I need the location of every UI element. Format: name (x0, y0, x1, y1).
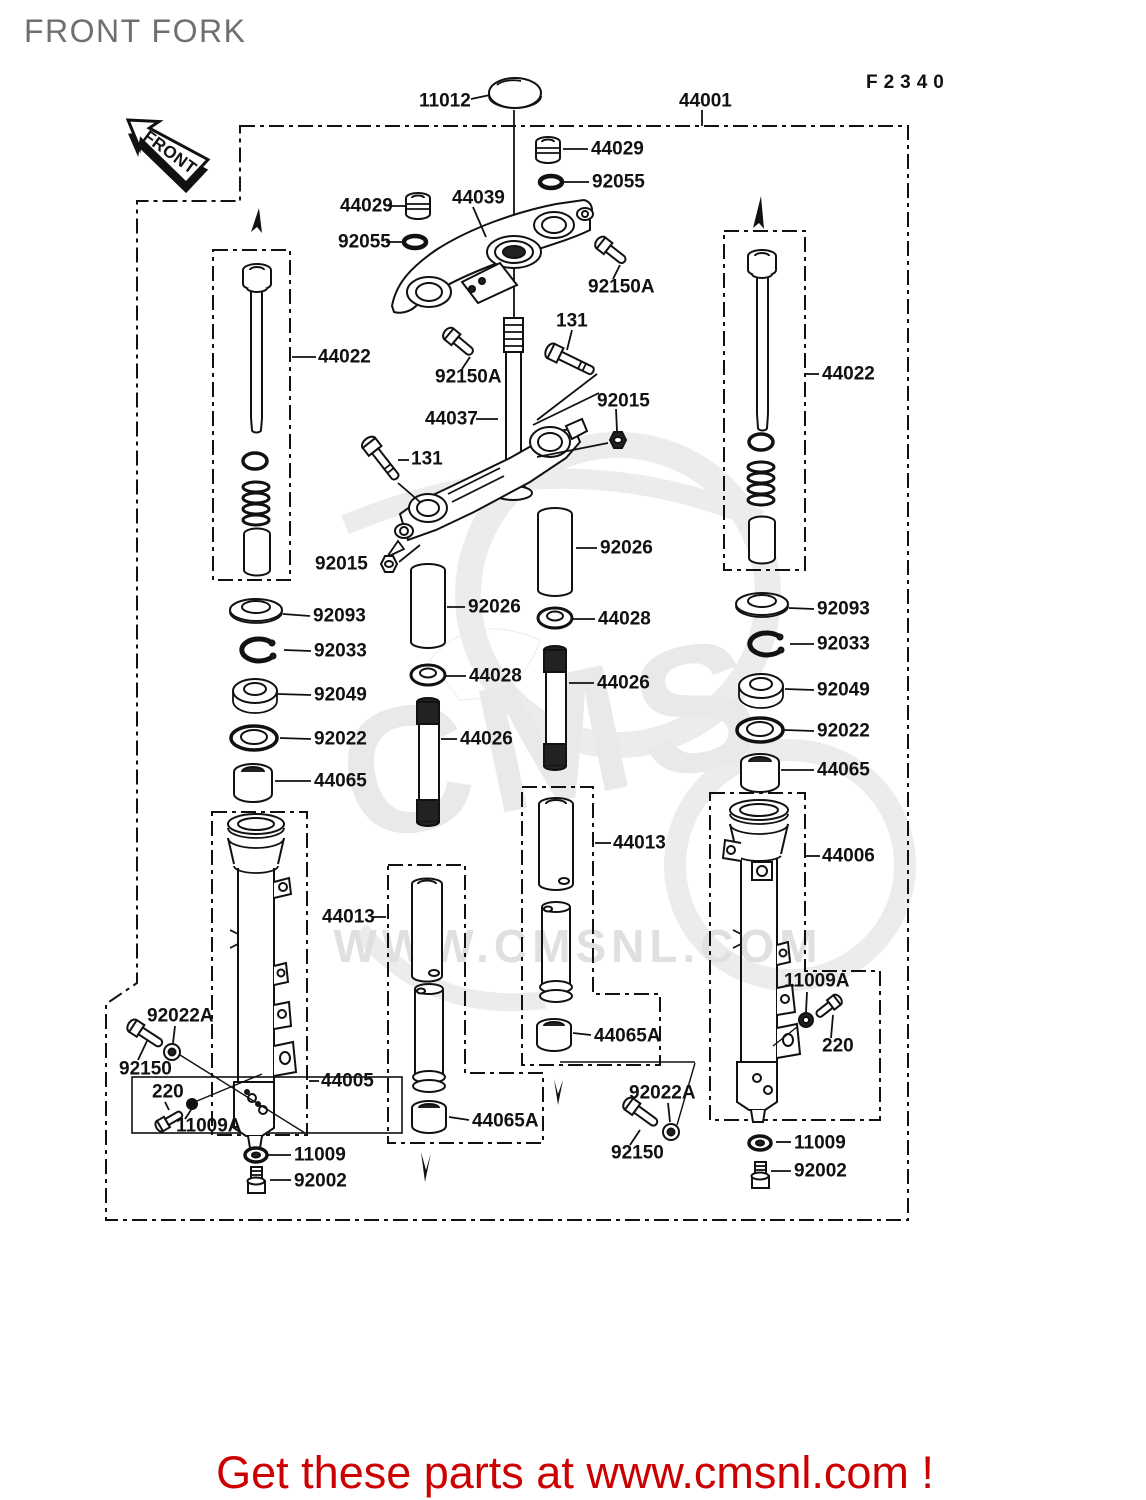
front-arrow: FRONT (113, 106, 214, 195)
nut-92015-right-drawing (610, 432, 626, 448)
part-label-11009A-left: 11009A (176, 1116, 242, 1137)
part-label-44029-left: 44029 (340, 196, 393, 217)
washer-44028-right-drawing (538, 608, 572, 628)
part-label-44065A-left: 44065A (472, 1111, 539, 1132)
page-title: FRONT FORK (24, 13, 246, 49)
part-label-44037: 44037 (425, 409, 478, 430)
screw-92002-left-drawing (248, 1167, 266, 1193)
part-label-44028-right: 44028 (598, 609, 651, 630)
bolt-220-right-drawing (814, 993, 844, 1020)
oring-92055-left-drawing (404, 236, 426, 248)
part-label-92150-left: 92150 (119, 1059, 172, 1080)
part-label-11012: 11012 (419, 91, 471, 112)
part-label-92150A-left: 92150A (435, 367, 502, 388)
part-label-92022A-right: 92022A (629, 1083, 696, 1104)
part-label-11009-left: 11009 (294, 1145, 346, 1166)
bolt-131-top-drawing (543, 342, 597, 379)
part-label-44006: 44006 (822, 846, 875, 867)
figure-code: F2340 (866, 72, 950, 93)
part-label-92055-left: 92055 (338, 232, 391, 253)
part-label-92055-right: 92055 (592, 172, 645, 193)
part-label-44026-left: 44026 (460, 729, 513, 750)
part-label-92150-right: 92150 (611, 1143, 664, 1164)
stud-44026-left-drawing (417, 698, 439, 826)
part-label-92049-left: 92049 (314, 685, 367, 706)
part-label-92093-left: 92093 (313, 606, 366, 627)
part-label-92049-right: 92049 (817, 680, 870, 701)
down-arrow-center-icon (554, 1079, 563, 1105)
bolt-131-left-drawing (360, 434, 403, 483)
up-arrow-right-icon (753, 196, 764, 229)
footer-text: Get these parts at www.cmsnl.com ! (216, 1447, 934, 1498)
washer-11009A-right-drawing (799, 1013, 813, 1027)
part-label-92002-left: 92002 (294, 1171, 347, 1192)
nut-92015-left-drawing (381, 556, 397, 572)
inner-tube-left-drawing (412, 879, 446, 1134)
part-label-220-left: 220 (152, 1082, 184, 1103)
part-label-92022-right: 92022 (817, 721, 870, 742)
part-label-92022-left: 92022 (314, 729, 367, 750)
part-label-44029-right: 44029 (591, 139, 644, 160)
part-label-92015-left: 92015 (315, 554, 368, 575)
part-label-11009A-right: 11009A (784, 971, 850, 992)
part-label-44013-center: 44013 (613, 833, 666, 854)
spacer-92026-right-drawing (538, 508, 572, 596)
part-label-44065-left: 44065 (314, 771, 367, 792)
watermark-url-text: WWW.CMSNL.COM (333, 920, 822, 972)
cap-44029-right-drawing (536, 137, 560, 163)
part-label-44065-right: 44065 (817, 760, 870, 781)
part-label-92026-left: 92026 (468, 597, 521, 618)
part-label-44028-left: 44028 (469, 666, 522, 687)
part-label-92093-right: 92093 (817, 599, 870, 620)
part-label-92022A-left: 92022A (147, 1006, 214, 1027)
bolt-92150A-right-drawing (593, 234, 629, 267)
washer-11009-left-drawing (245, 1148, 267, 1162)
part-label-44039: 44039 (452, 188, 505, 209)
washer-44028-left-drawing (411, 665, 445, 685)
part-label-11009-right: 11009 (794, 1133, 846, 1154)
washer-11009A-left-drawing (186, 1098, 198, 1110)
stud-44026-right-drawing (544, 646, 566, 770)
part-label-44013-left: 44013 (322, 907, 375, 928)
screw-92002-right-drawing (752, 1162, 770, 1188)
part-label-131-top: 131 (556, 311, 588, 332)
seal-stack-left-drawing (230, 599, 282, 802)
bolt-92150A-left-drawing (441, 325, 477, 358)
washer-11009-right-drawing (749, 1136, 771, 1150)
part-label-92150A-right: 92150A (588, 277, 655, 298)
up-arrow-left-icon (251, 208, 262, 233)
outer-tube-left-drawing (228, 814, 296, 1148)
part-label-92026-right: 92026 (600, 538, 653, 559)
part-label-92015-right: 92015 (597, 391, 650, 412)
part-label-44005: 44005 (321, 1071, 374, 1092)
part-label-44022-right: 44022 (822, 364, 875, 385)
parts-diagram-page: CMS WWW.CMSNL.COM FRONT FORK F2340 FRONT (0, 0, 1146, 1500)
washer-92022A-right-drawing (663, 1124, 679, 1140)
part-label-131-left: 131 (411, 449, 443, 470)
oring-92055-right-drawing (540, 176, 562, 188)
spacer-92026-left-drawing (411, 564, 445, 648)
part-label-92002-right: 92002 (794, 1161, 847, 1182)
part-label-92033-left: 92033 (314, 641, 367, 662)
part-label-44022-left: 44022 (318, 347, 371, 368)
part-label-44065A-center: 44065A (594, 1026, 661, 1047)
down-arrow-left-icon (421, 1152, 431, 1182)
part-label-92033-right: 92033 (817, 634, 870, 655)
damper-assembly-left-drawing (243, 264, 271, 576)
part-label-220-right: 220 (822, 1036, 854, 1057)
cap-44029-left-drawing (406, 193, 430, 219)
part-label-44026-right: 44026 (597, 673, 650, 694)
part-label-44001: 44001 (679, 91, 732, 112)
